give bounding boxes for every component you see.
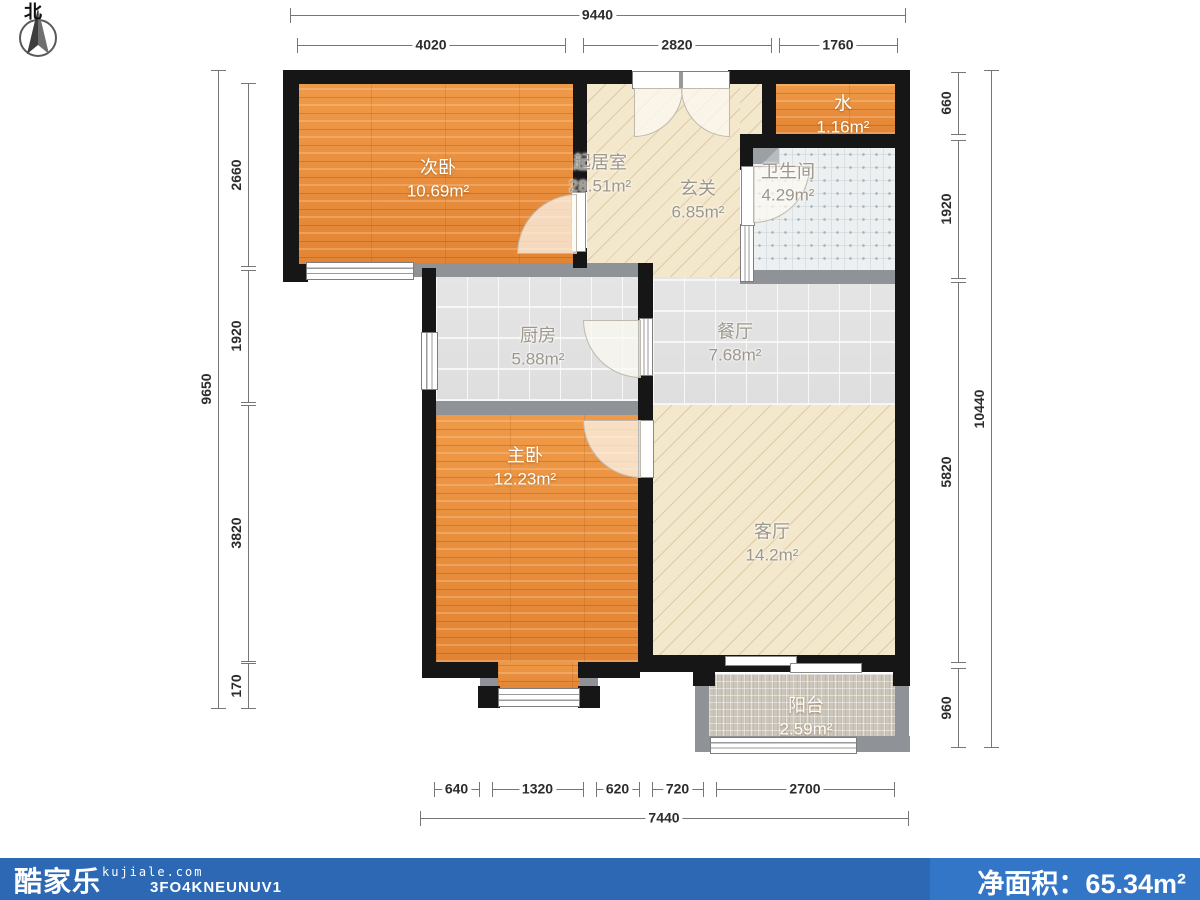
dimension-mark [897, 38, 898, 53]
dimension-label: 9650 [198, 370, 214, 407]
dimension-mark [241, 405, 256, 406]
dimension-label: 1920 [938, 190, 954, 227]
dimension-label: 3820 [228, 514, 244, 551]
dimension-mark [479, 782, 480, 797]
dimension-label: 640 [442, 781, 471, 797]
wall-segment [728, 70, 910, 84]
wall-segment [283, 264, 308, 282]
wall-segment [895, 684, 909, 738]
dimension-label: 720 [663, 781, 692, 797]
dimension-mark [951, 72, 966, 73]
dimension-mark [703, 782, 704, 797]
dimension-mark [565, 38, 566, 53]
dimension-label: 9440 [579, 7, 616, 23]
room-floor-bay-window [498, 662, 580, 690]
dimension-mark [958, 282, 959, 662]
wall-segment [412, 263, 653, 277]
dimension-label: 170 [228, 671, 244, 700]
dimension-label: 10440 [971, 386, 987, 431]
floorplan-page: 北 [0, 0, 1200, 900]
dimension-mark [583, 782, 584, 797]
dimension-mark [779, 38, 780, 53]
wall-segment [895, 70, 910, 672]
north-label: 北 [24, 0, 42, 24]
dimension-mark [951, 278, 966, 279]
dimension-mark [241, 661, 256, 662]
dimension-mark [951, 134, 966, 135]
dimension-mark [290, 8, 291, 23]
dimension-mark [248, 663, 249, 708]
kujiale-logo: 酷家乐 [14, 860, 101, 900]
room-floor-dining [653, 277, 895, 405]
dimension-label: 620 [603, 781, 632, 797]
window [740, 224, 754, 282]
dimension-mark [951, 662, 966, 663]
window [421, 332, 438, 390]
dimension-mark [984, 747, 999, 748]
wall-segment [740, 270, 910, 284]
dimension-label: 5820 [938, 453, 954, 490]
room-label-餐厅: 餐厅7.68m² [709, 321, 762, 366]
dimension-mark [241, 663, 256, 664]
dimension-mark [958, 72, 959, 134]
dimension-mark [241, 266, 256, 267]
dimension-mark [297, 38, 298, 53]
dimension-mark [894, 782, 895, 797]
website-text: kujiale.com [102, 865, 203, 879]
dimension-label: 4020 [412, 37, 449, 53]
wall-segment [422, 268, 436, 678]
plan-code: 3FO4KNEUNUV1 [150, 879, 282, 896]
wall-segment [578, 662, 640, 678]
dimension-mark [241, 83, 256, 84]
dimension-mark [241, 270, 256, 271]
dimension-label: 7440 [645, 810, 682, 826]
dimension-mark [905, 8, 906, 23]
wall-segment [283, 70, 299, 282]
room-label-起居室: 起居室28.51m² [569, 152, 631, 197]
sliding-door-panel [790, 663, 862, 673]
dimension-mark [241, 402, 256, 403]
dimension-mark [951, 668, 966, 669]
footer-bar: 酷家乐 kujiale.com 3FO4KNEUNUV1 [0, 858, 930, 900]
dimension-label: 1320 [519, 781, 556, 797]
wall-segment [283, 70, 632, 84]
wall-segment [578, 686, 600, 708]
net-area-value: 65.34m² [1085, 869, 1186, 899]
net-area-section: 净面积：65.34m² [930, 858, 1200, 900]
dimension-mark [420, 811, 421, 826]
dimension-mark [248, 405, 249, 661]
wall-segment [436, 401, 638, 415]
kitchen-pass-window [639, 318, 653, 376]
room-label-阳台: 阳台2.59m² [780, 695, 833, 740]
dimension-mark [951, 140, 966, 141]
wall-segment [693, 662, 715, 686]
wall-segment [695, 684, 709, 738]
dimension-mark [492, 782, 493, 797]
dimension-mark [908, 811, 909, 826]
dimension-mark [991, 70, 992, 747]
dimension-mark [596, 782, 597, 797]
dimension-label: 1920 [228, 317, 244, 354]
room-label-主卧: 主卧12.23m² [494, 445, 556, 490]
dimension-mark [241, 708, 256, 709]
balcony-window [710, 737, 857, 754]
dimension-mark [652, 782, 653, 797]
bay-window [498, 688, 580, 707]
dimension-mark [771, 38, 772, 53]
net-area-text: 净面积：65.34m² [977, 862, 1186, 900]
room-label-水: 水1.16m² [817, 93, 870, 138]
dimension-mark [639, 782, 640, 797]
dimension-mark [951, 747, 966, 748]
dimension-label: 2700 [786, 781, 823, 797]
wall-segment [422, 662, 498, 678]
room-label-厨房: 厨房5.88m² [512, 325, 565, 370]
dimension-label: 1760 [819, 37, 856, 53]
room-label-卫生间: 卫生间4.29m² [761, 161, 815, 206]
dimension-mark [248, 83, 249, 266]
wall-segment [893, 662, 910, 686]
dimension-mark [716, 782, 717, 797]
sliding-door-panel [725, 656, 797, 666]
dimension-mark [211, 708, 226, 709]
room-label-客厅: 客厅14.2m² [746, 521, 799, 566]
entrance-door [632, 71, 730, 89]
dimension-label: 2660 [228, 156, 244, 193]
window [306, 262, 414, 280]
dimension-label: 2820 [658, 37, 695, 53]
dimension-mark [958, 140, 959, 278]
door-leaf [639, 420, 654, 478]
room-label-玄关: 玄关6.85m² [672, 178, 725, 223]
dimension-mark [951, 282, 966, 283]
dimension-mark [218, 70, 219, 708]
dimension-mark [984, 70, 999, 71]
wall-segment [478, 686, 500, 708]
net-area-label: 净面积： [977, 869, 1085, 899]
room-label-次卧: 次卧10.69m² [407, 157, 469, 202]
dimension-mark [211, 70, 226, 71]
dimension-mark [583, 38, 584, 53]
dimension-label: 660 [938, 88, 954, 117]
dimension-mark [434, 782, 435, 797]
dimension-mark [958, 668, 959, 747]
room-floor-hall-ext [740, 84, 762, 134]
north-indicator: 北 [10, 0, 70, 66]
dimension-label: 960 [938, 693, 954, 722]
dimension-mark [248, 270, 249, 402]
